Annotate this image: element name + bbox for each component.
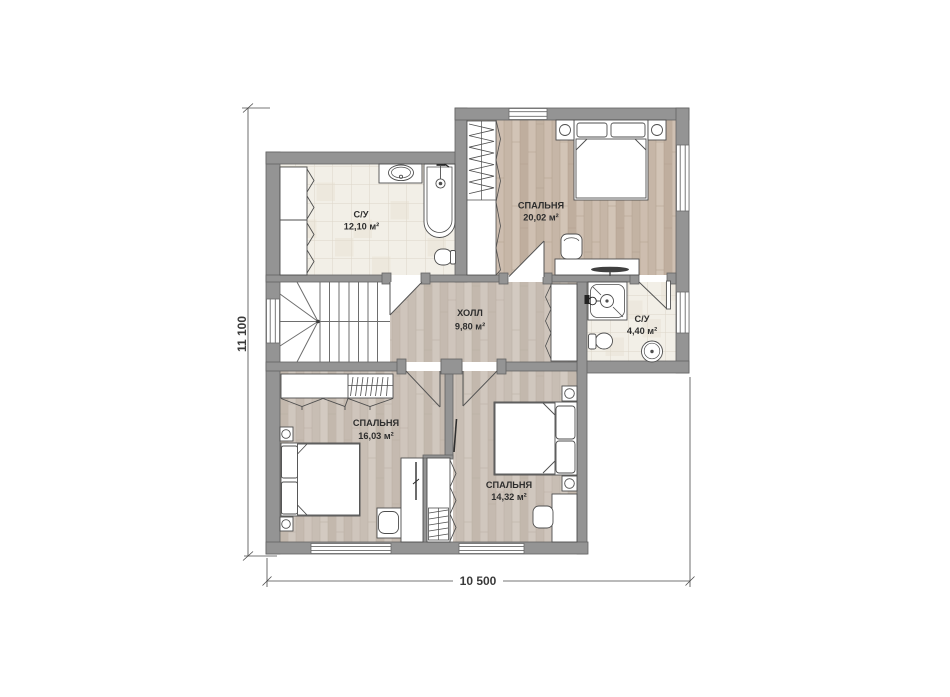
svg-text:СПАЛЬНЯ: СПАЛЬНЯ (353, 418, 399, 428)
svg-text:9,80 м²: 9,80 м² (455, 322, 485, 332)
svg-text:С/У: С/У (635, 314, 650, 324)
svg-text:10 500: 10 500 (460, 574, 497, 588)
svg-text:С/У: С/У (354, 210, 369, 220)
svg-text:20,02 м²: 20,02 м² (523, 213, 558, 223)
svg-text:11 100: 11 100 (235, 316, 249, 352)
svg-text:СПАЛЬНЯ: СПАЛЬНЯ (518, 201, 564, 211)
svg-text:ХОЛЛ: ХОЛЛ (457, 308, 483, 318)
svg-text:14,32 м²: 14,32 м² (491, 492, 526, 502)
svg-text:12,10 м²: 12,10 м² (344, 222, 379, 232)
svg-text:4,40 м²: 4,40 м² (627, 326, 657, 336)
svg-text:СПАЛЬНЯ: СПАЛЬНЯ (486, 480, 532, 490)
svg-text:16,03 м²: 16,03 м² (358, 431, 393, 441)
